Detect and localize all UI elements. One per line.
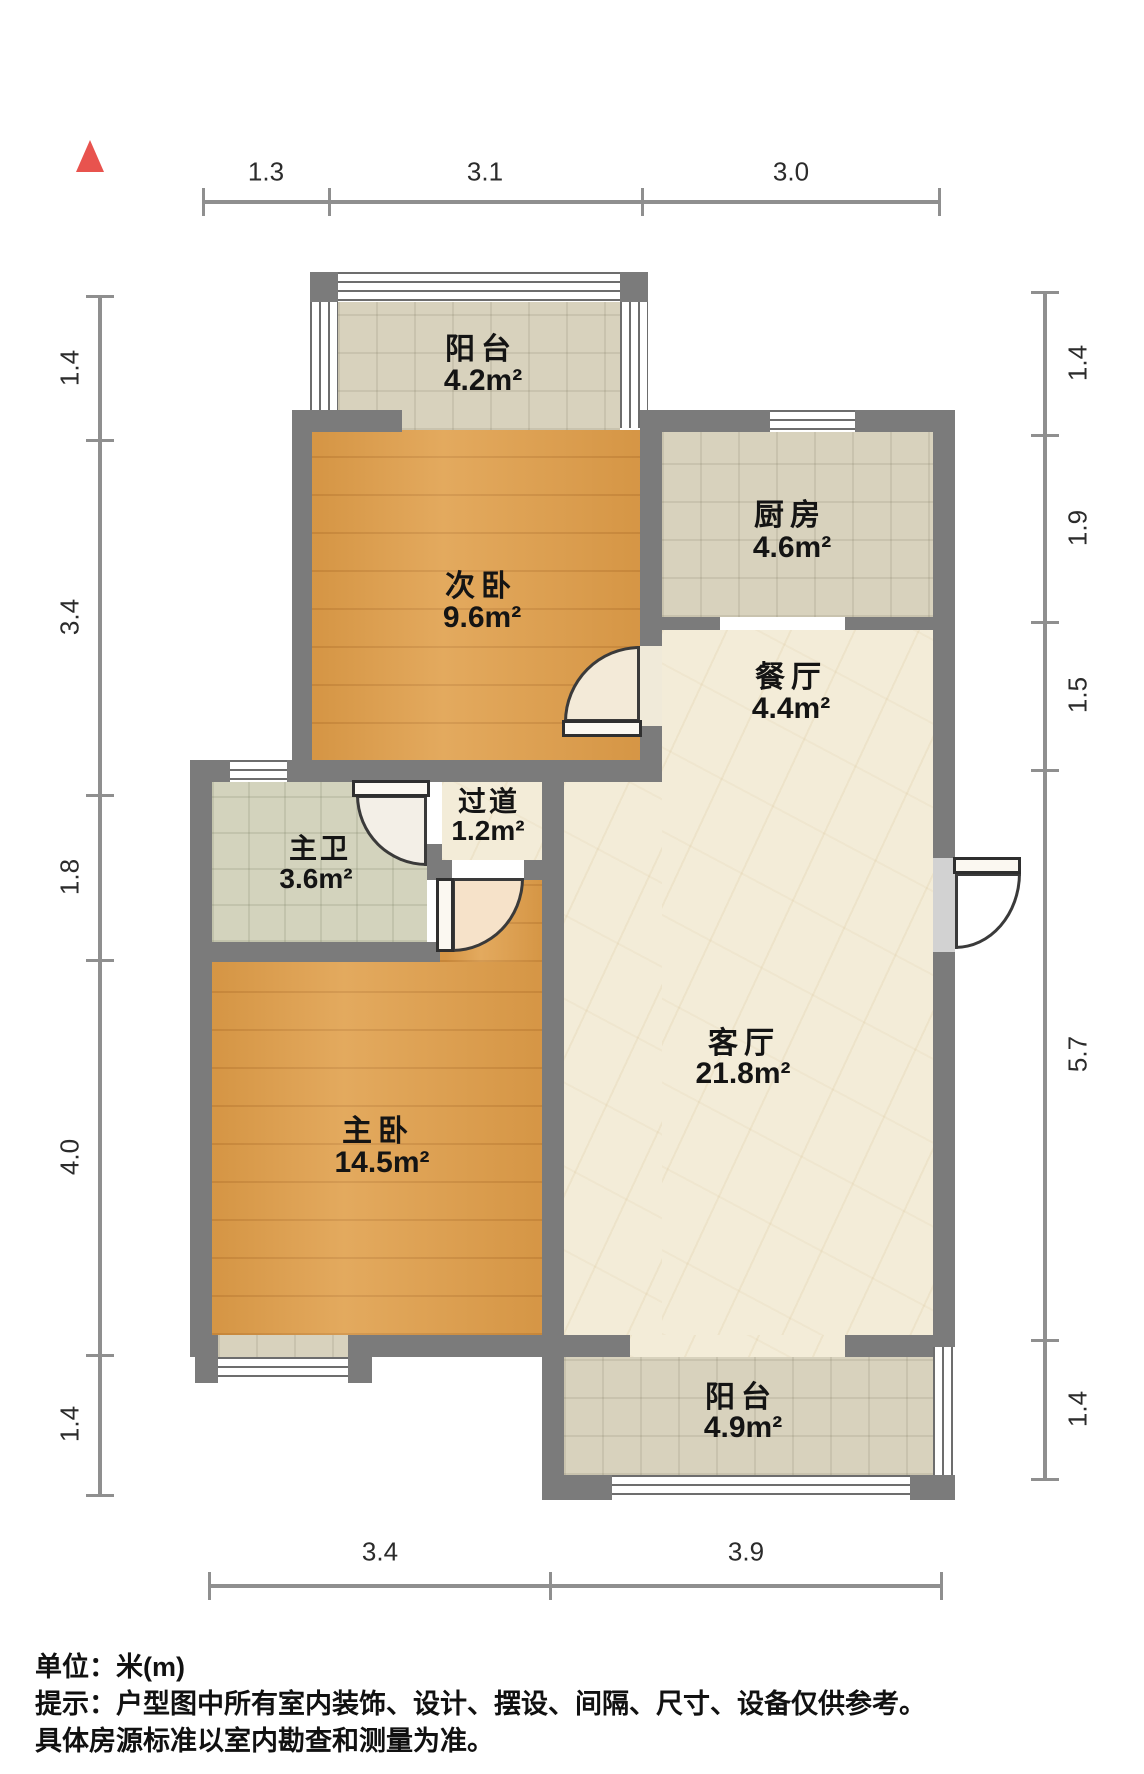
dim-tick bbox=[86, 794, 114, 797]
balcony-bottom-window bbox=[612, 1475, 910, 1500]
balcony-top-window bbox=[338, 272, 620, 302]
dim-right-4: 5.7 bbox=[1063, 1036, 1094, 1072]
footer-tip-line1: 提示：户型图中所有室内装饰、设计、摆设、间隔、尺寸、设备仅供参考。 bbox=[35, 1682, 926, 1721]
wall-living-balcony-left-stub bbox=[564, 1335, 630, 1357]
wall-bathroom-bottom bbox=[190, 942, 440, 962]
dim-tick bbox=[1031, 434, 1059, 437]
wall-second-bedroom-right-upper bbox=[640, 410, 662, 646]
dim-right-5: 1.4 bbox=[1063, 1391, 1094, 1427]
bathroom-window bbox=[230, 760, 287, 782]
wall-hallway-master-left-stub bbox=[427, 860, 452, 880]
second-bedroom-door-opening bbox=[640, 646, 662, 726]
entrance-opening bbox=[933, 858, 955, 952]
room-label-master-bedroom: 主卧 bbox=[342, 1106, 414, 1150]
entrance-door-swing bbox=[955, 873, 1021, 949]
room-label-balcony-top: 阳台 bbox=[445, 324, 517, 368]
dim-tick bbox=[938, 188, 941, 216]
dim-line-top bbox=[203, 200, 940, 204]
dim-left-2: 3.4 bbox=[55, 599, 86, 635]
dim-left-5: 1.4 bbox=[55, 1406, 86, 1442]
kitchen-window bbox=[770, 410, 855, 432]
dim-line-bottom bbox=[209, 1584, 942, 1588]
room-area-balcony-bottom: 4.9m² bbox=[704, 1411, 782, 1445]
dim-tick bbox=[549, 1572, 552, 1600]
wall-kitchen-dining-left-stub bbox=[662, 617, 720, 630]
room-label-balcony-bottom: 阳台 bbox=[705, 1372, 777, 1416]
room-label-kitchen: 厨房 bbox=[754, 490, 826, 534]
dim-right-2: 1.9 bbox=[1063, 510, 1094, 546]
room-area-second-bedroom: 9.6m² bbox=[443, 601, 521, 635]
footer-unit-note: 单位：米(m) bbox=[35, 1645, 185, 1684]
wall-kitchen-top-left bbox=[662, 410, 770, 432]
wall-master-bottom-right bbox=[348, 1335, 564, 1357]
dim-tick bbox=[86, 1354, 114, 1357]
bay-window-sill bbox=[218, 1335, 348, 1359]
entrance-door-leaf bbox=[953, 857, 1021, 874]
dim-right-1: 1.4 bbox=[1063, 345, 1094, 381]
floor-plan-canvas: 阳台 4.2m² 次卧 9.6m² 厨房 4.6m² 餐厅 4.4m² 过道 1… bbox=[0, 0, 1144, 1774]
balcony-threshold bbox=[630, 1335, 845, 1357]
wall-left-outer bbox=[190, 760, 212, 1357]
dim-tick bbox=[208, 1572, 211, 1600]
dim-right-3: 1.5 bbox=[1063, 677, 1094, 713]
bay-window-post-right bbox=[348, 1357, 372, 1383]
room-area-master-bedroom: 14.5m² bbox=[334, 1146, 429, 1180]
north-arrow-icon bbox=[76, 140, 104, 172]
dim-tick bbox=[641, 188, 644, 216]
master-bedroom-door-leaf bbox=[436, 878, 454, 952]
room-label-living: 客厅 bbox=[708, 1018, 780, 1062]
dim-left-4: 4.0 bbox=[55, 1139, 86, 1175]
dim-top-3: 3.0 bbox=[773, 157, 809, 188]
wall-right-outer-lower bbox=[933, 952, 955, 1347]
dining-living-floor bbox=[662, 630, 933, 1335]
room-label-dining: 餐厅 bbox=[755, 652, 827, 696]
dim-tick bbox=[1031, 769, 1059, 772]
room-area-bathroom: 3.6m² bbox=[279, 863, 352, 895]
dim-tick bbox=[1031, 1339, 1059, 1342]
dim-tick bbox=[1031, 1478, 1059, 1481]
room-label-hallway: 过道 bbox=[458, 780, 520, 820]
dim-tick bbox=[86, 439, 114, 442]
master-bay-window bbox=[218, 1357, 348, 1383]
dim-line-left bbox=[98, 296, 102, 1496]
dim-bottom-2: 3.9 bbox=[728, 1537, 764, 1568]
wall-balcony-post-right bbox=[620, 272, 648, 302]
room-label-second-bedroom: 次卧 bbox=[445, 561, 517, 605]
dim-tick bbox=[86, 959, 114, 962]
dim-tick bbox=[86, 1494, 114, 1497]
wall-second-bedroom-left bbox=[292, 410, 312, 762]
wall-living-balcony-right-stub bbox=[845, 1335, 933, 1357]
wall-master-living-divider bbox=[542, 782, 564, 1357]
room-area-hallway: 1.2m² bbox=[451, 815, 524, 847]
bathroom-door-leaf bbox=[352, 780, 430, 797]
dim-tick bbox=[328, 188, 331, 216]
room-label-bathroom: 主卫 bbox=[289, 827, 351, 867]
dim-tick bbox=[1031, 621, 1059, 624]
wall-balcony-bottom-right-corner bbox=[910, 1475, 955, 1500]
wall-balcony-post-left bbox=[310, 272, 338, 302]
bay-window-post-left bbox=[195, 1357, 218, 1383]
dim-tick bbox=[1031, 291, 1059, 294]
dim-line-right bbox=[1043, 292, 1047, 1480]
dim-left-1: 1.4 bbox=[55, 350, 86, 386]
room-area-kitchen: 4.6m² bbox=[753, 531, 831, 565]
balcony-bottom-right-window bbox=[933, 1347, 955, 1475]
dim-top-2: 3.1 bbox=[467, 157, 503, 188]
dim-tick bbox=[202, 188, 205, 216]
wall-master-bottom-left bbox=[190, 1335, 218, 1357]
living-floor-west-strip bbox=[564, 782, 662, 1335]
wall-right-outer-upper bbox=[933, 410, 955, 858]
footer-tip-line2: 具体房源标准以室内勘查和测量为准。 bbox=[35, 1719, 494, 1758]
dim-left-3: 1.8 bbox=[55, 859, 86, 895]
dim-tick bbox=[940, 1572, 943, 1600]
second-bedroom-door-leaf bbox=[562, 720, 642, 737]
dim-tick bbox=[86, 295, 114, 298]
wall-second-bedroom-bottom bbox=[287, 760, 662, 782]
wall-kitchen-dining-right-stub bbox=[845, 617, 933, 630]
dim-top-1: 1.3 bbox=[248, 157, 284, 188]
wall-balcony-bottom-left-corner bbox=[542, 1475, 612, 1500]
dim-bottom-1: 3.4 bbox=[362, 1537, 398, 1568]
room-area-balcony-top: 4.2m² bbox=[444, 364, 522, 398]
room-area-dining: 4.4m² bbox=[752, 692, 830, 726]
room-area-living: 21.8m² bbox=[695, 1057, 790, 1091]
